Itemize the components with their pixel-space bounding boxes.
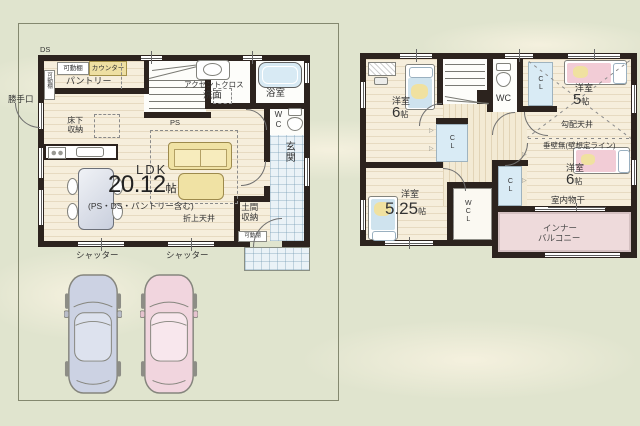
pillow <box>409 67 433 78</box>
window <box>38 190 44 225</box>
car-blue <box>64 272 122 396</box>
room-sw-label: 洋室 <box>401 189 419 199</box>
wall-tick <box>416 49 417 62</box>
closet-label: CL <box>506 178 514 194</box>
wall <box>264 103 270 162</box>
accent-cross-label: アクセントクロス <box>184 81 244 89</box>
room-size-unit: 帖 <box>418 208 426 217</box>
chair <box>67 203 78 220</box>
closet-nw: CL <box>436 124 468 162</box>
background-swirl <box>300 320 640 400</box>
wcl-closet <box>453 188 492 240</box>
closet-e: CL <box>498 166 522 206</box>
movable-shelf-side-label: 可動棚 <box>46 72 52 89</box>
stove <box>48 147 66 159</box>
ps-label: PS <box>170 119 180 127</box>
wall <box>366 162 441 168</box>
room-size-number: 6 <box>392 105 400 122</box>
wall <box>437 59 443 105</box>
ds-label: DS <box>40 46 50 54</box>
blanket-pattern <box>411 84 428 99</box>
kitchen-sink <box>76 147 104 157</box>
ldk-size-unit: 帖 <box>166 183 177 195</box>
wall <box>38 55 310 61</box>
wall <box>517 59 523 112</box>
chair <box>67 178 78 195</box>
wcl-label: WCL <box>464 200 472 236</box>
counter-label: カウンター <box>92 65 125 72</box>
floor-plan-canvas: 可動棚 カウンター パントリー 可動棚 床下収納 <box>0 0 640 426</box>
window <box>304 63 310 83</box>
movable-shelf-label: 可動棚 <box>63 65 83 72</box>
wall-tick <box>519 49 520 62</box>
counter-open-edge <box>121 63 122 89</box>
bed <box>564 60 627 85</box>
indoor-drying-label: 室内物干 <box>551 196 585 206</box>
back-door-label: 勝手口 <box>8 95 34 105</box>
blanket <box>408 78 432 108</box>
blanket-pattern <box>573 66 588 78</box>
wc2-label: WC <box>496 93 511 103</box>
pillow <box>372 231 396 241</box>
wall <box>304 55 310 247</box>
entrance-porch <box>244 247 310 271</box>
pillow <box>618 150 630 173</box>
coffered-ceiling-label: 折上天井 <box>183 215 215 224</box>
wall <box>282 241 310 247</box>
car-pink <box>140 272 198 396</box>
wcl-opening <box>453 190 454 238</box>
wall <box>38 241 250 247</box>
room-nw-size: 6 帖 <box>392 105 408 122</box>
entrance-door <box>304 158 310 186</box>
sloped-ceiling-label: 勾配天井 <box>561 121 593 130</box>
wall <box>250 61 256 103</box>
shutter-label: シャッター <box>166 251 209 261</box>
bifold-door-mark: ▷ <box>522 178 527 184</box>
wall <box>631 53 637 258</box>
room-size-number: 5.25 <box>385 199 418 218</box>
movable-shelf-side: 可動棚 <box>44 70 55 100</box>
wall <box>44 88 144 94</box>
ldk-size: 20.12 帖 <box>108 172 177 199</box>
assumed-wall-line <box>528 138 631 139</box>
balcony-label-line2: バルコニー <box>538 234 580 244</box>
bathtub-inner <box>262 66 298 84</box>
window <box>631 85 637 113</box>
closet-ne: CL <box>528 62 553 106</box>
room-size-unit: 帖 <box>574 178 582 187</box>
no-hanging-wall-label: 垂壁無(壁想定ライン) <box>543 142 616 150</box>
bifold-door-mark: ▷ <box>429 128 434 134</box>
closet-label: CL <box>537 76 545 92</box>
bathtub <box>258 62 302 88</box>
wall-tick <box>151 51 152 64</box>
toilet-tank <box>288 108 302 116</box>
closet-label: CL <box>448 135 456 151</box>
ldk-size-number: 20.12 <box>108 172 166 199</box>
washbasin-bowl <box>203 63 222 76</box>
pantry-label: パントリー <box>66 76 111 86</box>
drying-bar <box>548 207 606 208</box>
room-ne-size: 5 帖 <box>573 92 589 109</box>
window <box>360 82 366 108</box>
window <box>631 160 637 185</box>
wall-tick <box>252 51 253 64</box>
desk-chair <box>374 77 388 85</box>
room-size-unit: 帖 <box>581 98 589 107</box>
stair-treads <box>445 64 485 92</box>
wall-tick <box>409 237 410 249</box>
balcony-opening <box>545 252 620 258</box>
underfloor-storage-label: 床下収納 <box>66 117 84 135</box>
desk <box>368 62 396 76</box>
movable-shelf: 可動棚 <box>57 62 89 75</box>
bathroom-label: 浴室 <box>266 89 285 100</box>
toilet-tank <box>496 63 511 71</box>
room-sw-size: 5.25 帖 <box>385 199 426 218</box>
room-size-number: 6 <box>566 172 574 189</box>
room-e-size: 6 帖 <box>566 172 582 189</box>
bifold-door-mark: ▷ <box>429 146 434 152</box>
ldk-note: (PS・DS・パントリー含む) <box>88 202 194 212</box>
underfloor-storage-hatch <box>94 114 120 138</box>
washroom-label: 洗面 <box>203 91 222 102</box>
wc-label: WC <box>273 110 282 136</box>
doma-storage-label: 土間収納 <box>240 203 260 222</box>
room-size-number: 5 <box>573 92 581 109</box>
room-size-unit: 帖 <box>400 111 408 120</box>
window <box>360 200 366 230</box>
shutter-label: シャッター <box>76 251 119 261</box>
entrance-label: 玄関 <box>283 141 294 181</box>
